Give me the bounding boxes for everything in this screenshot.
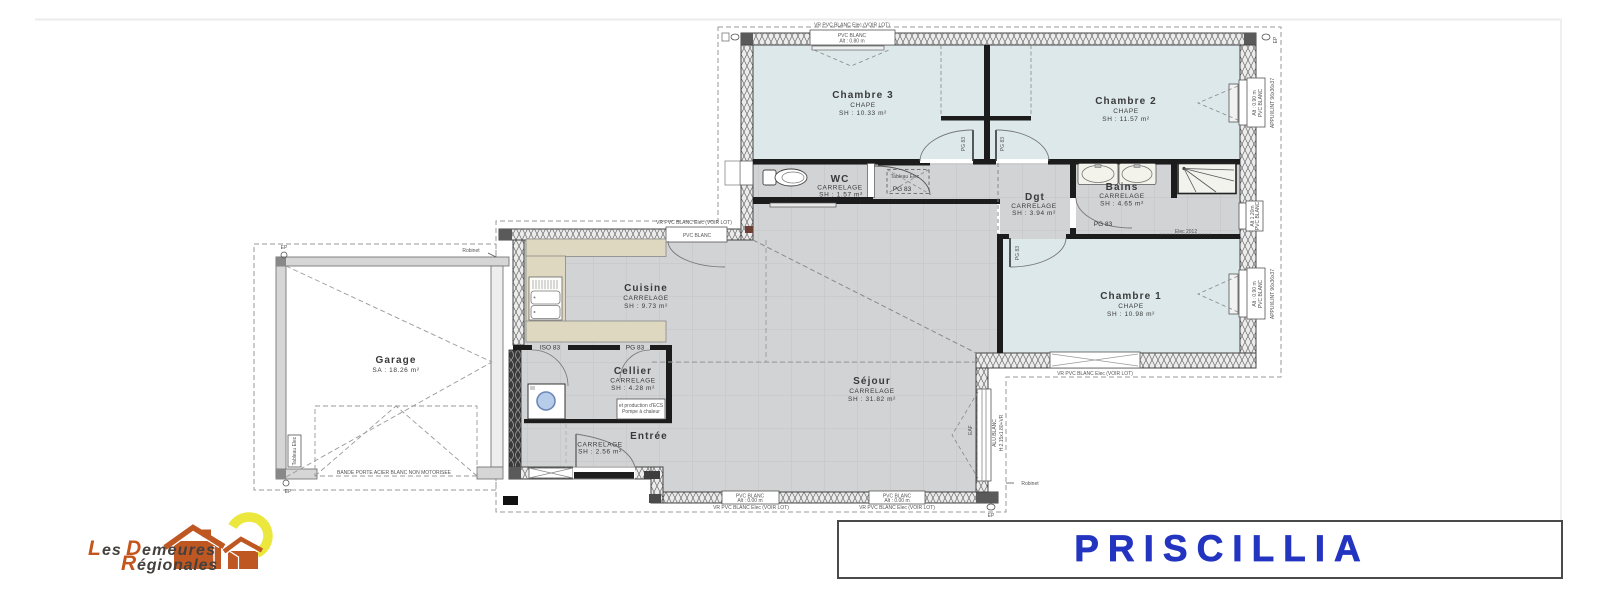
svg-text:SH : 31.82 m²: SH : 31.82 m²: [848, 396, 896, 403]
svg-text:PG 83: PG 83: [1015, 246, 1021, 260]
svg-text:Alt : 0.00 m: Alt : 0.00 m: [884, 498, 909, 504]
svg-text:PG 83: PG 83: [1094, 221, 1113, 228]
svg-text:Robinet: Robinet: [1021, 481, 1039, 487]
svg-text:CHAPE: CHAPE: [1113, 108, 1138, 115]
svg-text:SH : 10.98 m²: SH : 10.98 m²: [1107, 311, 1155, 318]
svg-text:APPUI/LINT 96x36x37: APPUI/LINT 96x36x37: [1270, 269, 1276, 319]
svg-text:CARRELAGE: CARRELAGE: [1099, 193, 1145, 200]
svg-text:es: es: [102, 542, 122, 559]
svg-text:SH : 2.56 m²: SH : 2.56 m²: [578, 449, 622, 456]
svg-text:ALU.BLANC: ALU.BLANC: [992, 419, 998, 447]
svg-text:PVC BLANC: PVC BLANC: [1258, 88, 1264, 117]
svg-text:PG 83: PG 83: [893, 186, 912, 193]
svg-text:Pompe à chaleur: Pompe à chaleur: [622, 409, 660, 415]
svg-text:CARRELAGE: CARRELAGE: [817, 185, 863, 192]
svg-text:EP: EP: [281, 245, 288, 251]
svg-text:SH : 3.94 m²: SH : 3.94 m²: [1012, 210, 1056, 217]
svg-text:VR PVC BLANC Elec (VOIR LOT): VR PVC BLANC Elec (VOIR LOT): [1057, 371, 1133, 377]
svg-text:H:2.15x1.80+VR: H:2.15x1.80+VR: [999, 414, 1005, 451]
svg-text:SH : 4.28 m²: SH : 4.28 m²: [611, 385, 655, 392]
svg-text:Alt : 0.80 m: Alt : 0.80 m: [839, 39, 864, 45]
svg-text:L: L: [88, 537, 101, 560]
svg-text:Entrée: Entrée: [630, 431, 668, 442]
svg-text:Cellier: Cellier: [614, 366, 652, 377]
svg-text:Tableau Elec: Tableau Elec: [891, 174, 920, 180]
svg-text:Dgt: Dgt: [1025, 192, 1045, 203]
svg-text:Robinet: Robinet: [462, 248, 480, 254]
svg-text:BANDE PORTE ACIER BLANC NON MO: BANDE PORTE ACIER BLANC NON MOTORISEE: [337, 470, 452, 476]
svg-text:CHAPE: CHAPE: [850, 102, 875, 109]
svg-text:VR PVC BLANC Elec (VOIR LOT): VR PVC BLANC Elec (VOIR LOT): [859, 505, 935, 511]
svg-text:Séjour: Séjour: [853, 376, 891, 387]
svg-text:SA : 18.26 m²: SA : 18.26 m²: [372, 367, 419, 374]
svg-text:égionales: égionales: [137, 557, 218, 574]
svg-text:Cuisine: Cuisine: [624, 283, 668, 294]
svg-text:VR PVC BLANC Elec (VOIR LOT): VR PVC BLANC Elec (VOIR LOT): [713, 505, 789, 511]
svg-text:CARRELAGE: CARRELAGE: [1011, 203, 1057, 210]
svg-text:SH : 1.57 m²: SH : 1.57 m²: [819, 192, 863, 199]
svg-text:PG 83: PG 83: [1000, 137, 1006, 151]
svg-text:Tableau Elec: Tableau Elec: [292, 436, 298, 465]
svg-text:CARRELAGE: CARRELAGE: [623, 295, 669, 302]
svg-text:Bains: Bains: [1106, 182, 1139, 193]
svg-text:EP: EP: [1273, 36, 1279, 43]
svg-text:SH : 9.73 m²: SH : 9.73 m²: [624, 303, 668, 310]
svg-text:PVC BLANC: PVC BLANC: [1255, 201, 1261, 230]
svg-text:PVC BLANC: PVC BLANC: [683, 233, 712, 239]
svg-text:WC: WC: [831, 174, 850, 185]
svg-text:Chambre 2: Chambre 2: [1095, 96, 1157, 107]
svg-text:SH : 11.57 m²: SH : 11.57 m²: [1102, 116, 1150, 123]
svg-text:VR PVC BLANC Elec (VOIR LOT): VR PVC BLANC Elec (VOIR LOT): [656, 220, 732, 226]
svg-text:CARRELAGE: CARRELAGE: [849, 388, 895, 395]
svg-text:PVC BLANC: PVC BLANC: [1258, 279, 1264, 308]
svg-text:R: R: [121, 552, 137, 575]
svg-text:EAF: EAF: [968, 425, 974, 435]
svg-text:Garage: Garage: [375, 355, 416, 366]
svg-text:CARRELAGE: CARRELAGE: [577, 442, 623, 449]
svg-text:Alt : 0.00 m: Alt : 0.00 m: [737, 498, 762, 504]
svg-text:PG 83: PG 83: [626, 345, 645, 352]
svg-text:VR PVC BLANC Elec (VOIR LOT): VR PVC BLANC Elec (VOIR LOT): [814, 23, 890, 29]
svg-text:EP: EP: [988, 513, 995, 519]
svg-text:ISO 83: ISO 83: [540, 345, 561, 352]
svg-text:Chambre 3: Chambre 3: [832, 90, 894, 101]
svg-text:Chambre 1: Chambre 1: [1100, 291, 1162, 302]
svg-text:SH : 4.65 m²: SH : 4.65 m²: [1100, 201, 1144, 208]
svg-text:APPUI/LINT 96x36x37: APPUI/LINT 96x36x37: [1270, 78, 1276, 128]
svg-text:PRISCILLIA: PRISCILLIA: [1074, 528, 1370, 569]
svg-text:SH : 10.33 m²: SH : 10.33 m²: [839, 110, 887, 117]
svg-text:CHAPE: CHAPE: [1118, 303, 1143, 310]
svg-text:CARRELAGE: CARRELAGE: [610, 378, 656, 385]
svg-text:EP: EP: [285, 489, 292, 495]
svg-text:PG 83: PG 83: [961, 137, 967, 151]
